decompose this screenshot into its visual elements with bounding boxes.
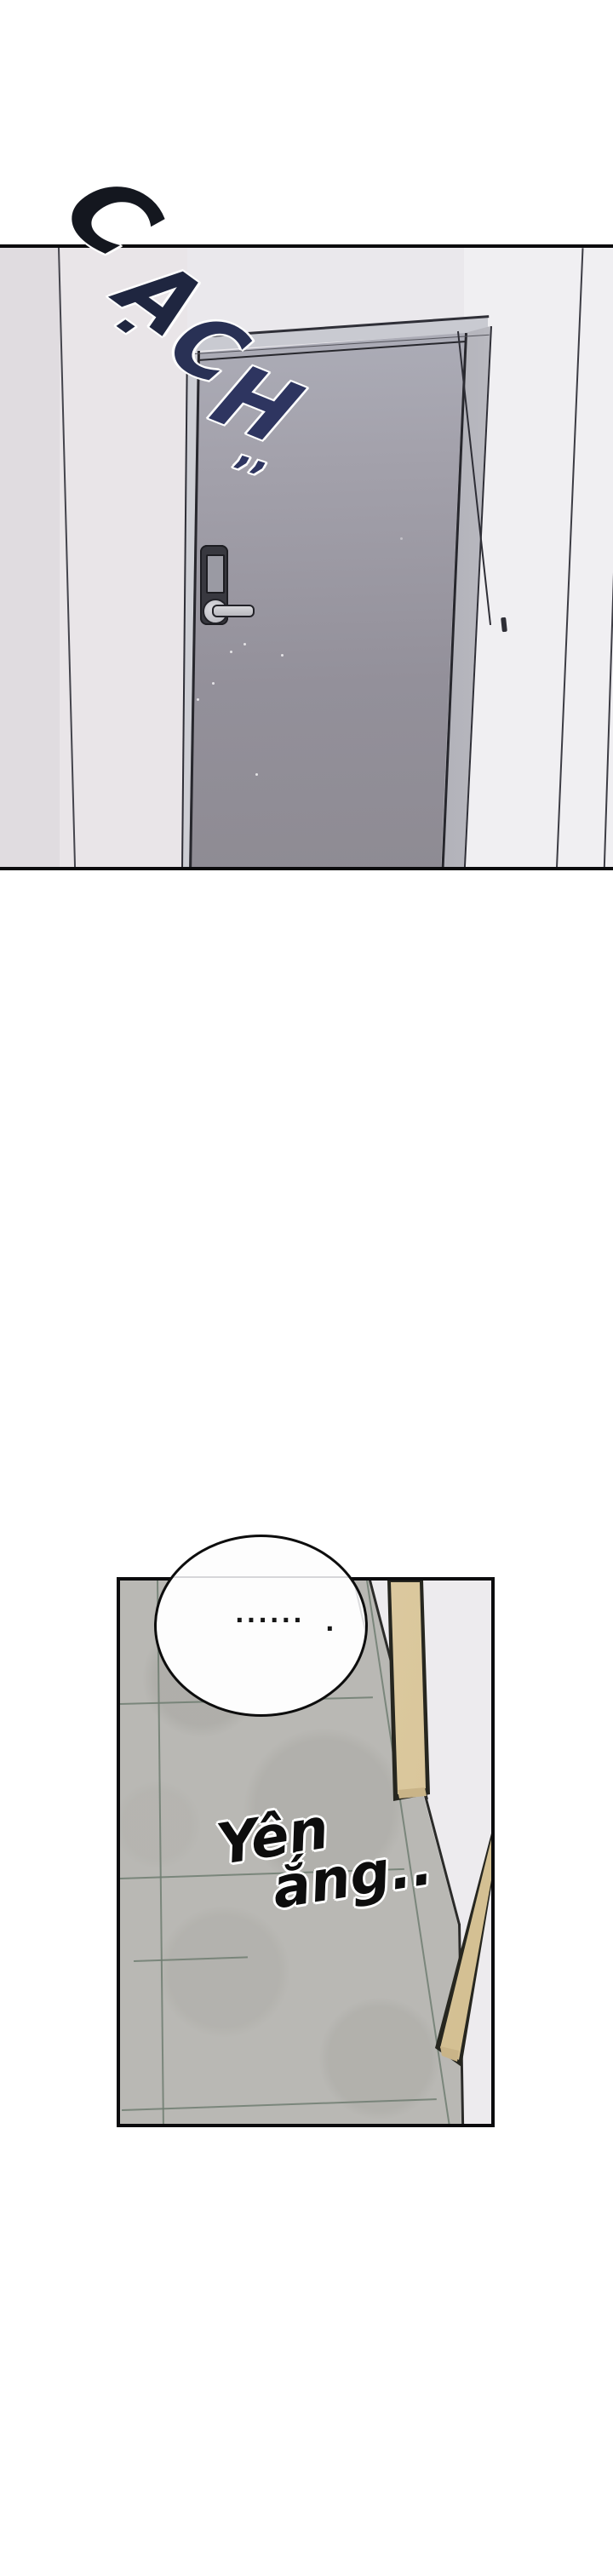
door-handle <box>212 605 255 617</box>
bubble-faint-line <box>157 1576 365 1578</box>
dust-speck <box>197 698 199 701</box>
left-wall-far <box>0 248 60 867</box>
caption-yen-ang: Yên ắng.. <box>214 1788 436 1923</box>
webtoon-page: C Ạ C H ’’ Yên ắng.. ...... . <box>0 0 613 2576</box>
dust-speck <box>281 654 284 657</box>
dust-speck <box>212 682 215 685</box>
tile-grout-line <box>122 2098 437 2111</box>
dust-speck <box>230 651 232 653</box>
comic-panel-door <box>0 244 613 870</box>
dust-speck <box>400 537 403 540</box>
speech-bubble: ...... . <box>154 1535 368 1717</box>
ellipsis-dot: . <box>325 1609 335 1637</box>
dust-speck <box>243 643 246 645</box>
dust-speck <box>255 773 258 776</box>
tile-grout-line <box>134 1956 248 1962</box>
door-lock-keypad <box>206 554 225 594</box>
ellipsis-dots: ...... <box>235 1600 305 1628</box>
